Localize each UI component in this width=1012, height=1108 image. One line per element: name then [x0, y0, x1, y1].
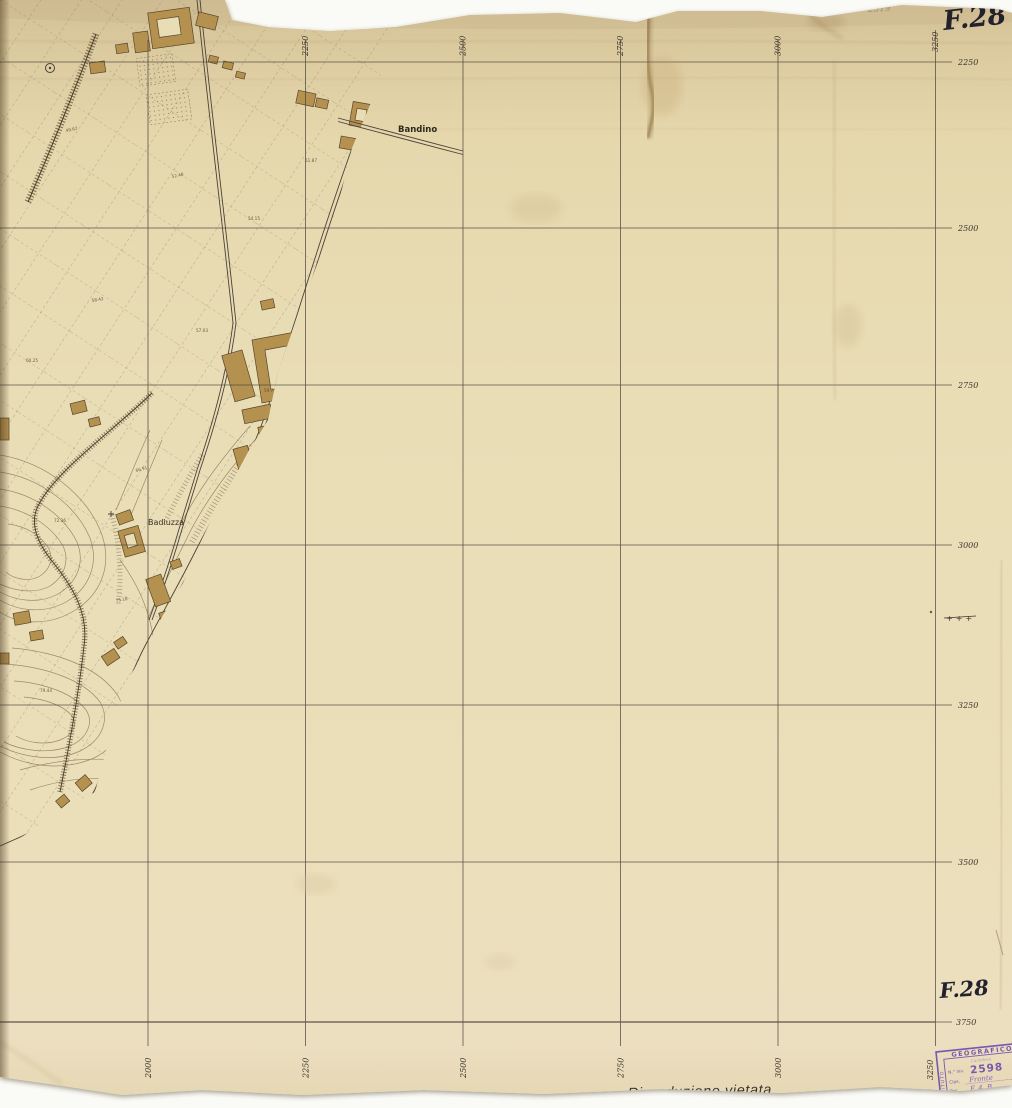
grid-label-right: 2750 — [957, 381, 978, 390]
grid-label-top: 2250 — [301, 36, 310, 57]
grid-label-top: 2750 — [616, 36, 625, 57]
sheet-number-bottom: F.28 — [938, 975, 990, 1003]
place-label-bandino: Bandino — [398, 125, 437, 135]
grid-label-top: 3250 — [931, 32, 940, 52]
grid-label-top: 3000 — [774, 36, 783, 56]
grid-label-bottom: 2000 — [144, 1058, 153, 1079]
grid-label-bottom: 2500 — [459, 1058, 468, 1079]
reproduction-notice: Riproduzione vietata — [628, 1082, 773, 1102]
grid-label-bottom: 3250 — [926, 1060, 935, 1080]
pencil-note: 2519 — [867, 4, 892, 15]
map-scan-canvas: 49.62 52.48 54.15 51.87 58.42 57.03 60.2… — [0, 0, 1012, 1108]
spot-height: 51.87 — [305, 158, 317, 163]
stamp-pos-value: F. 4. B. — [969, 1083, 995, 1094]
gutter-shadow — [0, 0, 10, 1108]
grid-label-bottom: 2250 — [302, 1058, 311, 1079]
spot-height: 60.25 — [26, 358, 38, 363]
grid-label-right: 2250 — [957, 58, 978, 67]
cross-marks-text: +++ — [946, 614, 975, 623]
grid-label-right: 3000 — [958, 541, 978, 550]
spot-height: 72.36 — [54, 518, 66, 523]
grid-label-right: 2500 — [957, 224, 978, 233]
grid-label-right: 3500 — [958, 858, 978, 867]
grid-label-right: 3250 — [958, 701, 978, 710]
scanned-map-page: 49.62 52.48 54.15 51.87 58.42 57.03 60.2… — [0, 0, 1012, 1108]
place-label-badiuzza: Badiuzza — [148, 518, 184, 527]
stamp-clas-label: Clas. — [949, 1079, 960, 1086]
grid-label-top: 2500 — [459, 36, 468, 57]
library-stamp: GEOGRAFICO ISTITUTO MILITARE Cartoteca N… — [936, 1042, 1012, 1104]
spot-height: 57.03 — [196, 328, 208, 333]
grid-label-right: 3750 — [956, 1018, 976, 1027]
spot-height: 54.15 — [248, 216, 260, 221]
stamp-pos-label: Pos. — [950, 1088, 959, 1095]
grid-label-bottom: 3000 — [774, 1058, 783, 1078]
spot-height: 79.44 — [40, 688, 52, 693]
grid-label-bottom: 2750 — [617, 1058, 626, 1079]
